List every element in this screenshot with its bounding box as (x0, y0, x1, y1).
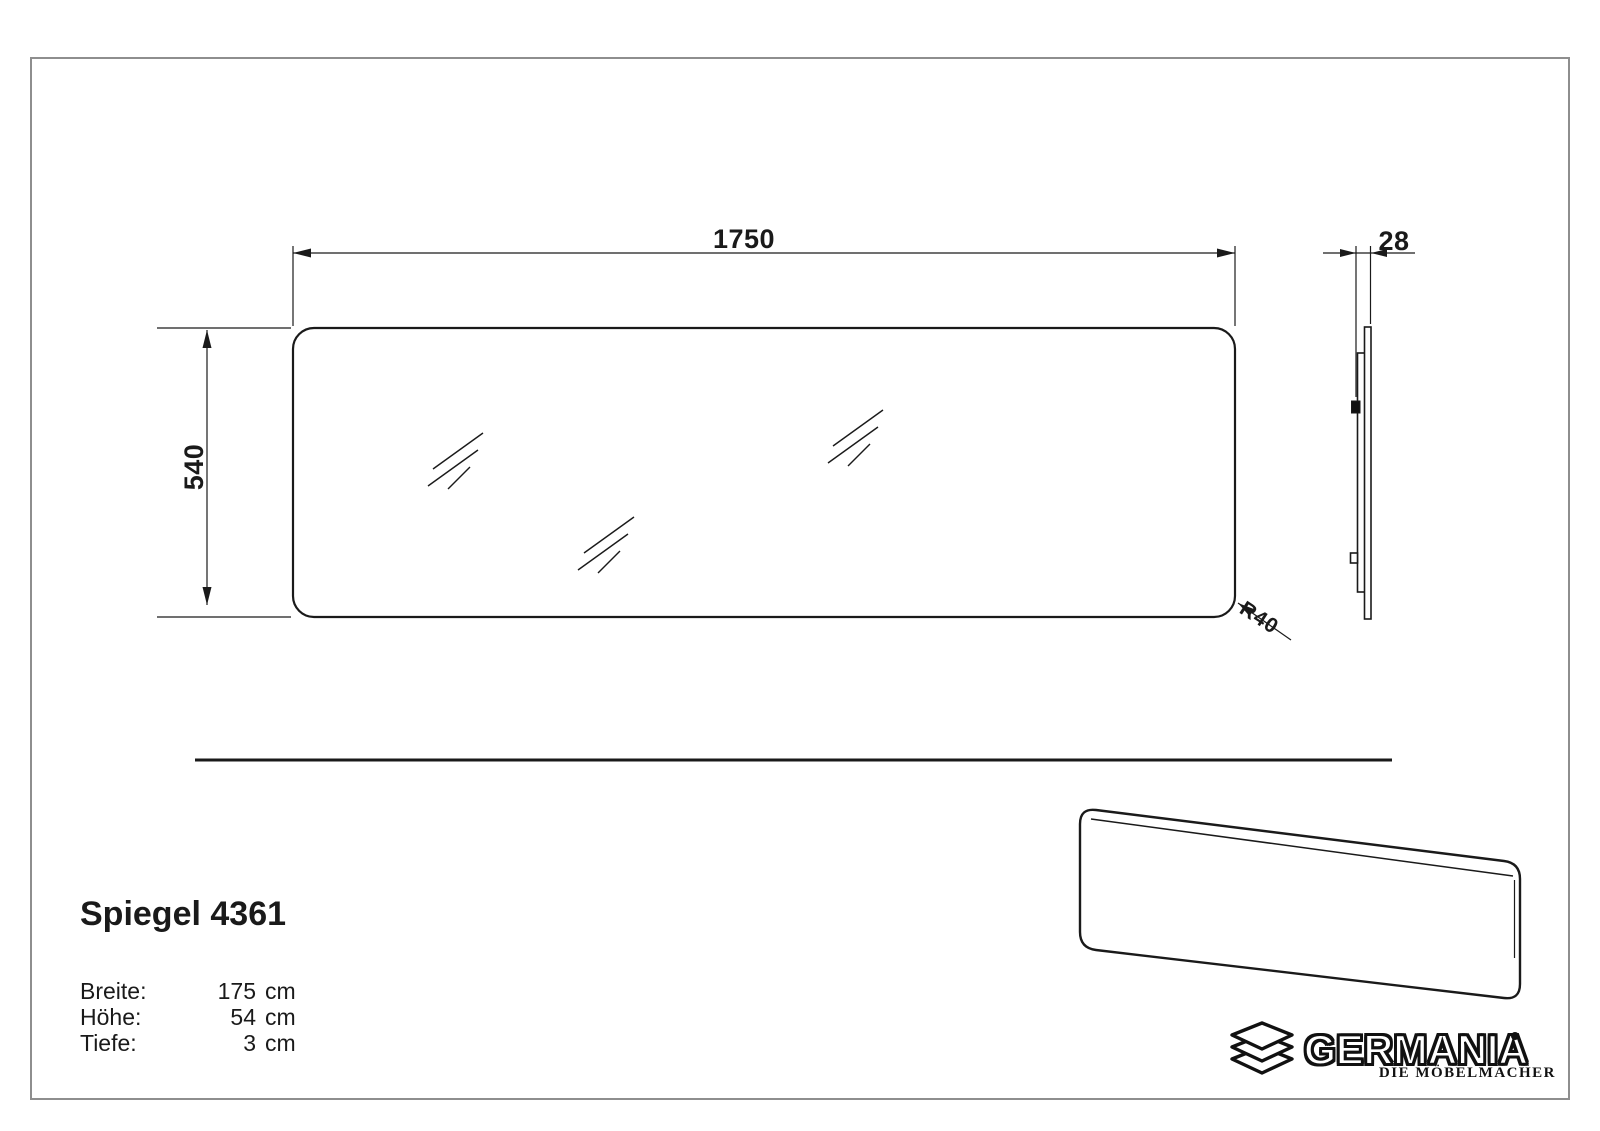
technical-drawing-canvas (0, 0, 1600, 1131)
spec-row-height: Höhe:54cm (80, 1004, 296, 1030)
stacked-boards-logo-icon (1228, 1020, 1296, 1076)
spec-value: 54 (192, 1004, 256, 1030)
side-view (1351, 327, 1372, 619)
arrowhead-bottom (203, 587, 212, 605)
side-view-mirror-glass (1365, 327, 1372, 619)
brand-tagline: DIE MÖBELMACHER (1356, 1065, 1556, 1082)
height-dimension (157, 328, 291, 617)
spec-unit: cm (265, 978, 296, 1004)
perspective-mirror-outline (1080, 810, 1520, 998)
width-dimension-label: 1750 (664, 224, 824, 255)
perspective-view (1080, 810, 1520, 998)
spec-unit: cm (265, 1004, 296, 1030)
front-view-mirror-outline (293, 328, 1235, 617)
arrowhead-right (1217, 249, 1235, 258)
trademark-dot-icon (1511, 1032, 1519, 1040)
arrowhead-left (293, 249, 311, 258)
width-dimension (293, 246, 1235, 326)
spec-table: Breite:175cm Höhe:54cm Tiefe:3cm (80, 978, 296, 1056)
height-dimension-label: 540 (180, 417, 208, 517)
side-view-lower-bracket (1351, 553, 1358, 563)
spec-unit: cm (265, 1030, 296, 1056)
spec-label: Tiefe: (80, 1030, 192, 1056)
spec-row-width: Breite:175cm (80, 978, 296, 1004)
arrowhead-top (203, 330, 212, 348)
page-title: Spiegel 4361 (80, 895, 286, 934)
spec-value: 3 (192, 1030, 256, 1056)
spec-row-depth: Tiefe:3cm (80, 1030, 296, 1056)
spec-label: Höhe: (80, 1004, 192, 1030)
depth-dimension-label: 28 (1354, 226, 1434, 257)
side-view-wall-bracket (1352, 401, 1361, 413)
spec-label: Breite: (80, 978, 192, 1004)
spec-value: 175 (192, 978, 256, 1004)
